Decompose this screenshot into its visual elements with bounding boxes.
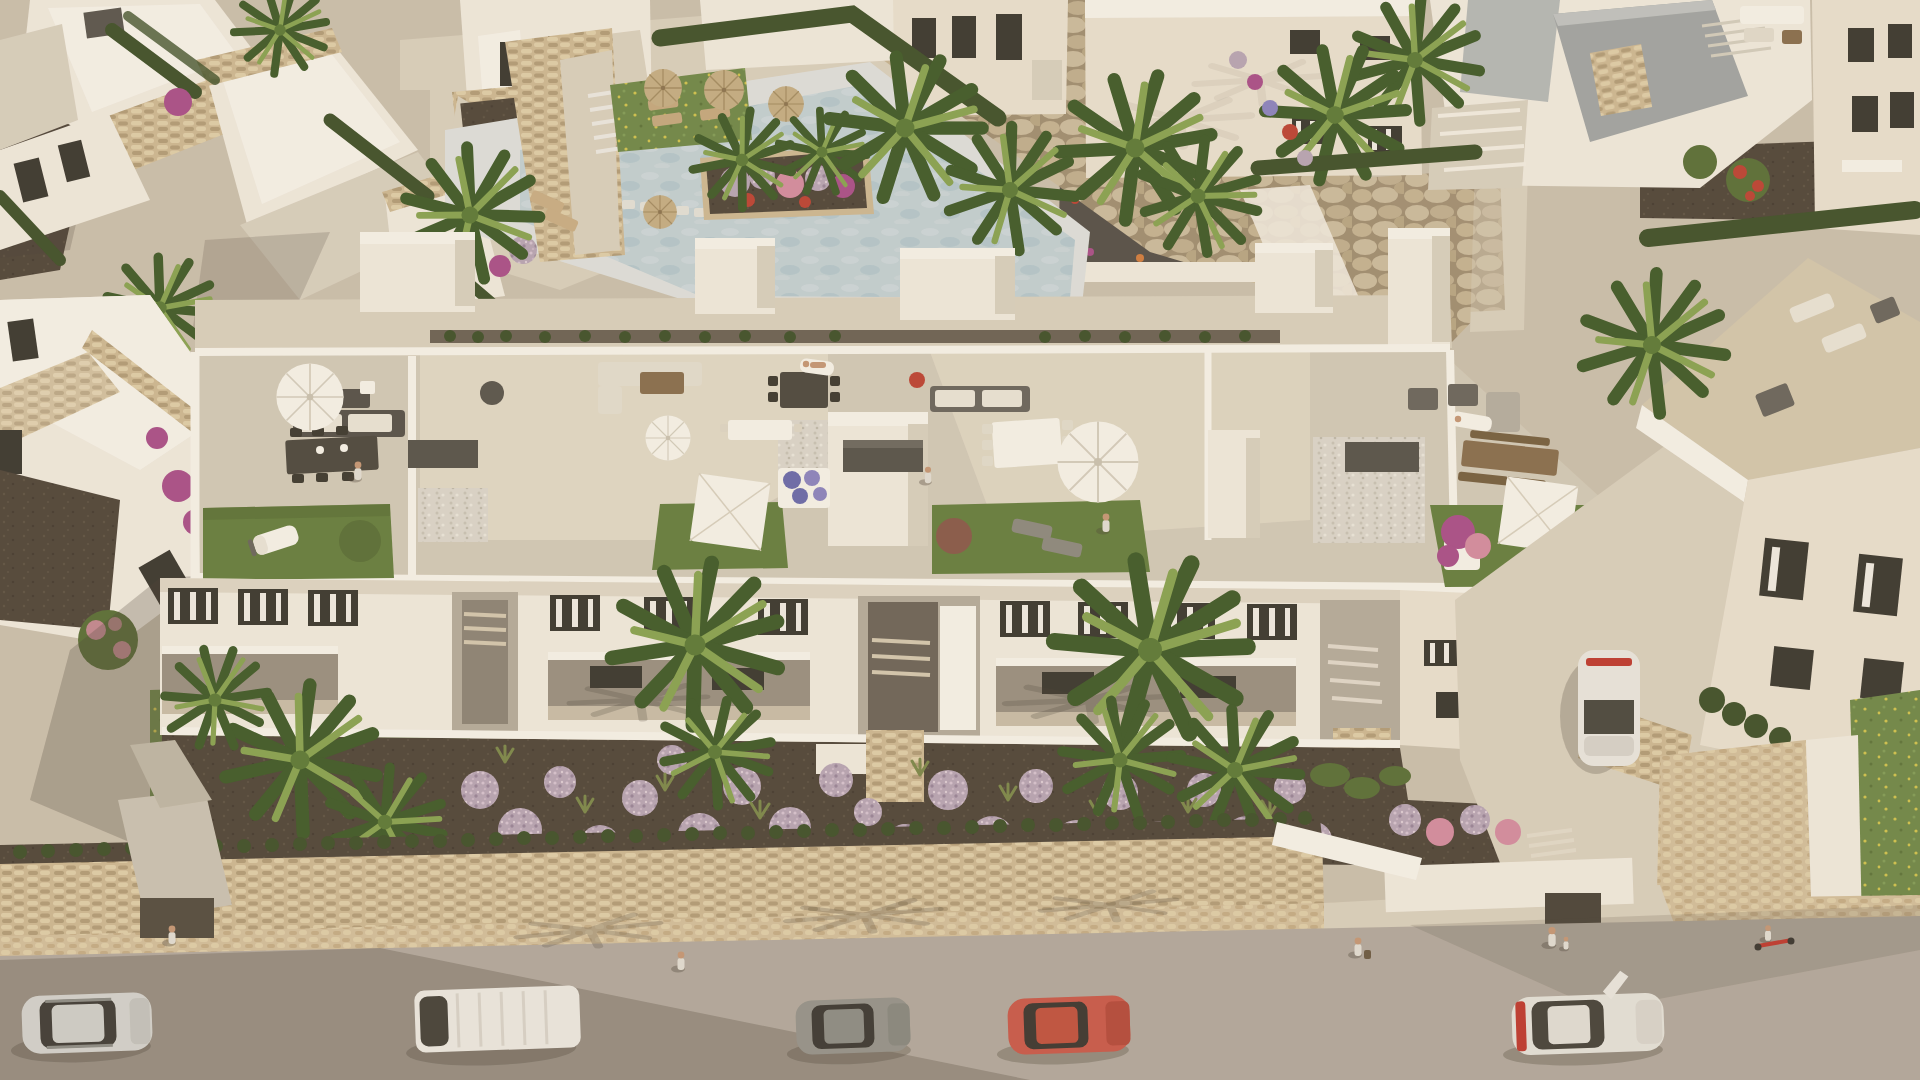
aerial-render xyxy=(0,0,1920,1080)
scene-canvas xyxy=(0,0,1920,1080)
vignette-overlay xyxy=(0,0,1920,1080)
